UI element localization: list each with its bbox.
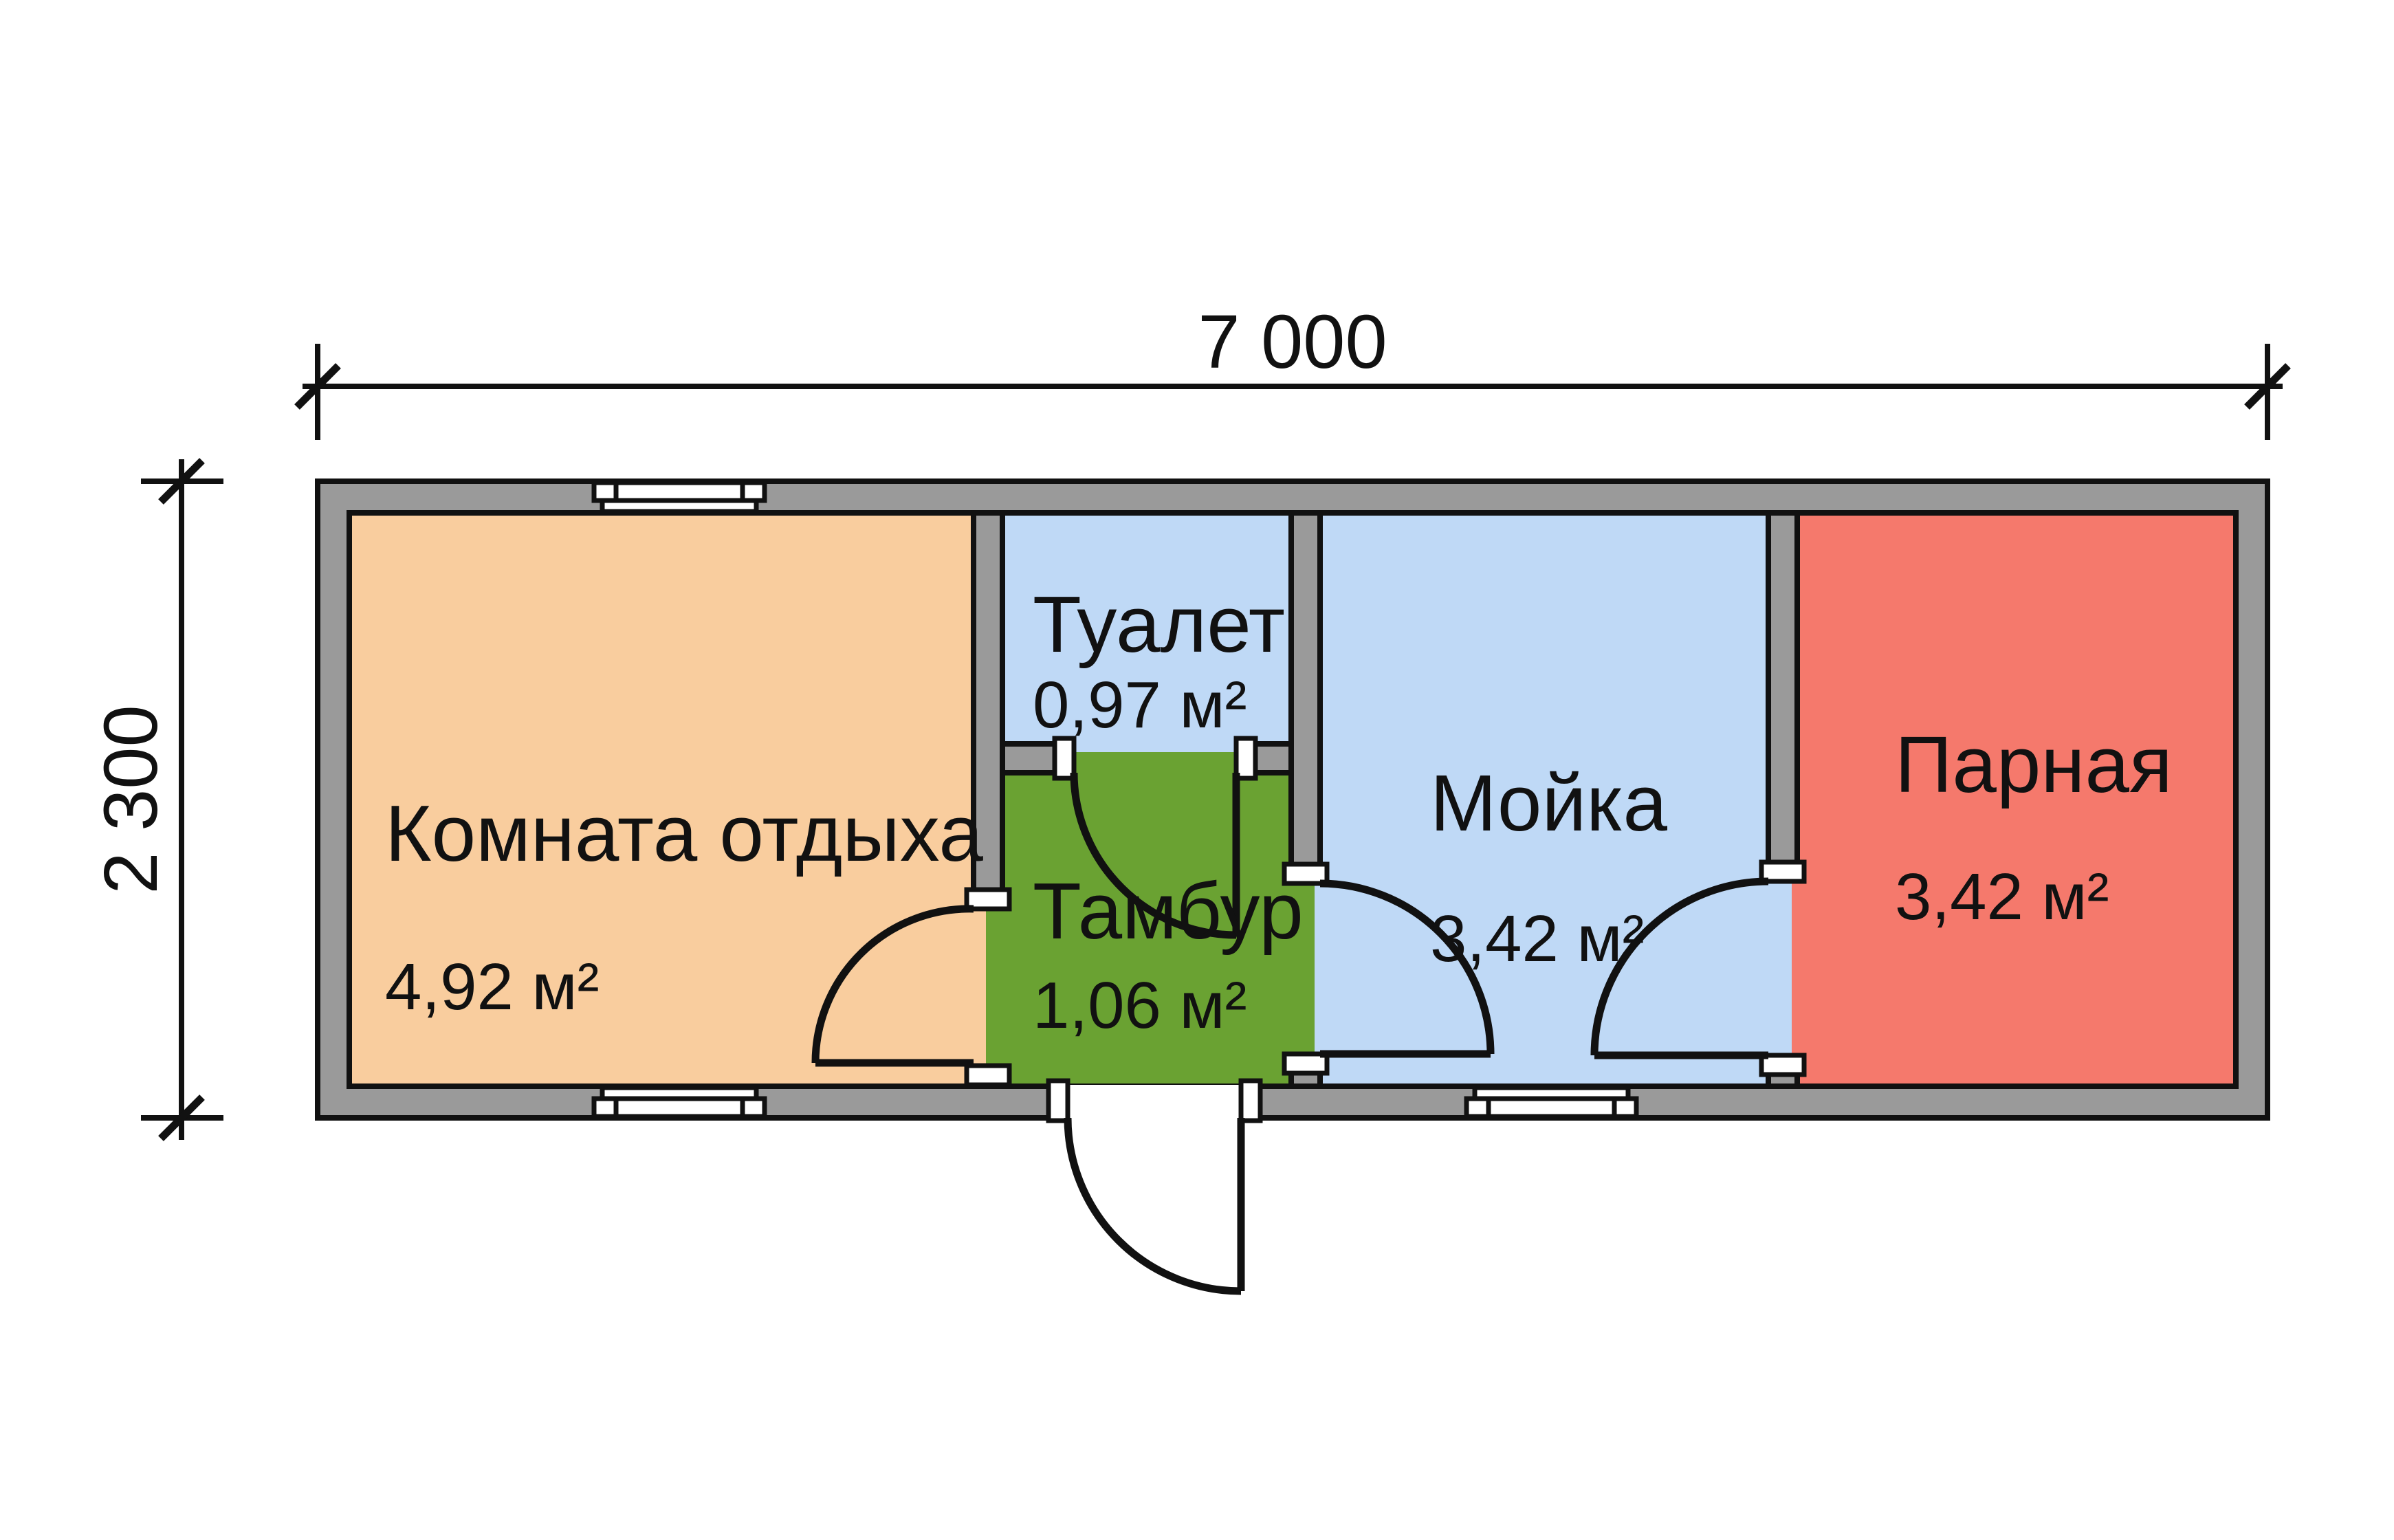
room-area-lounge: 4,92 м² — [385, 950, 599, 1024]
room-area-vestibule: 1,06 м² — [1033, 969, 1247, 1042]
door-jamb — [1048, 1081, 1068, 1121]
window-bottom-washroom — [1467, 1088, 1636, 1116]
room-name-lounge: Комната отдыха — [385, 789, 983, 878]
door-opening-fill — [971, 909, 986, 1066]
door-opening-fill — [1074, 741, 1236, 752]
door-opening-fill — [1068, 1085, 1241, 1121]
door-jamb — [967, 1066, 1009, 1085]
window-frame — [602, 500, 756, 511]
room-name-steam: Парная — [1895, 720, 2173, 809]
window-frame — [594, 1099, 765, 1116]
door-jamb — [1241, 1081, 1260, 1121]
room-name-vestibule: Тамбур — [1033, 866, 1304, 956]
room-area-washroom: 3,42 м² — [1430, 902, 1644, 976]
window-frame — [1467, 1099, 1636, 1116]
door-opening-fill — [1074, 752, 1236, 775]
window-frame — [594, 483, 765, 500]
room-area-steam: 3,42 м² — [1895, 860, 2109, 934]
window-bottom-lounge — [594, 1088, 765, 1116]
door-jamb — [1055, 738, 1074, 778]
door-opening-fill — [1792, 881, 1800, 1055]
window-top-lounge — [594, 483, 765, 511]
floor-plan-page: 7 000 2 300 — [0, 0, 2394, 1540]
door-opening-fill — [1766, 881, 1792, 1055]
dimension-left: 2 300 — [89, 459, 223, 1140]
dimension-top: 7 000 — [297, 300, 2288, 440]
door-opening-fill — [1315, 883, 1323, 1054]
dimension-height-label: 2 300 — [89, 705, 173, 894]
door-swing-arc — [1068, 1118, 1241, 1291]
floor-plan-canvas: 7 000 2 300 — [0, 0, 2394, 1540]
door-entrance — [1068, 1118, 1241, 1291]
door-opening-fill — [986, 909, 1005, 1066]
room-name-toilet: Туалет — [1033, 580, 1285, 669]
dimension-width-label: 7 000 — [1198, 300, 1387, 384]
door-jamb — [1236, 738, 1255, 778]
room-area-toilet: 0,97 м² — [1033, 668, 1247, 742]
room-name-washroom: Мойка — [1430, 758, 1668, 848]
